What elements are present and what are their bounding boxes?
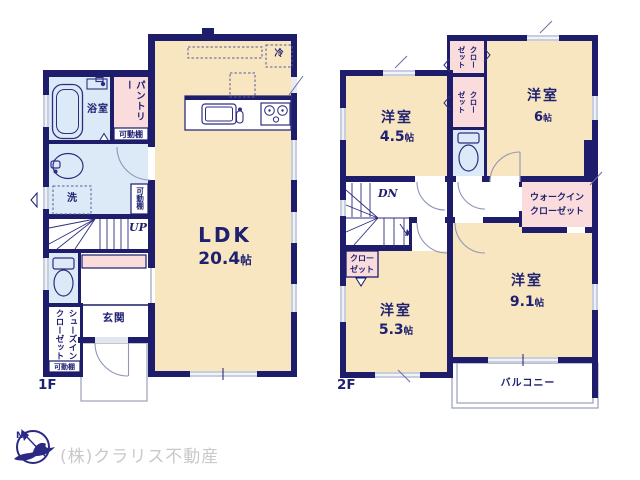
room-ldk [155, 41, 291, 371]
room-45 [346, 76, 447, 177]
shoe-closet-label: シューズイン クローゼット [52, 309, 78, 367]
entrance-porch [81, 343, 147, 401]
floorplan-canvas: N 浴室 パントリー 可動棚 洗 可動棚 UP LDK 20.4帖 冷 玄関 シ… [0, 0, 640, 480]
walkin-closet-label: ウォークイン クローゼット [520, 192, 594, 219]
room6-size-unit: 帖 [543, 114, 552, 124]
laundry-label: 洗 [56, 193, 88, 205]
pantry-label: パントリー [122, 80, 144, 128]
balcony-label: バルコニー [488, 378, 568, 390]
room53-size-unit: 帖 [404, 326, 414, 337]
room91-size-label: 9.1帖 [492, 294, 562, 310]
fridge-label: 冷 [266, 49, 292, 59]
room53-size-value: 5.3 [379, 322, 404, 338]
stairs-dn-label: DN [378, 188, 398, 201]
closet-top-label: クロー ゼット [455, 43, 479, 72]
room45-size-unit: 帖 [405, 133, 415, 144]
closet-small-label: クロー ゼット [346, 254, 378, 275]
room6-size-label: 6帖 [508, 111, 578, 126]
room45-size-label: 4.5帖 [362, 129, 432, 145]
shoe-shelf-label: 可動棚 [49, 363, 80, 371]
room91-size-value: 9.1 [510, 294, 535, 310]
hall-shelf [82, 255, 146, 268]
room6-name-label: 洋室 [508, 88, 578, 104]
stairs-up-label: UP [129, 222, 147, 235]
room-6 [487, 41, 592, 177]
room6-size-value: 6 [534, 110, 543, 125]
room45-name-label: 洋室 [362, 110, 432, 126]
floor1-label: 1F [38, 378, 57, 394]
room91-size-unit: 帖 [535, 298, 545, 309]
floorplan-drawing: N [0, 0, 640, 480]
entrance-label: 玄関 [94, 312, 134, 324]
room91-name-label: 洋室 [492, 273, 562, 289]
room53-name-label: 洋室 [361, 303, 431, 319]
room53-size-label: 5.3帖 [361, 322, 431, 338]
pantry-shelf-label: 可動棚 [114, 130, 148, 139]
ldk-size-label: 20.4帖 [180, 250, 270, 270]
ldk-name-label: LDK [185, 224, 265, 247]
company-logo: N [14, 429, 55, 463]
washroom-shelf-label: 可動棚 [135, 187, 144, 213]
bathroom-label: 浴室 [82, 104, 114, 116]
kitchen-counter-icon [185, 96, 291, 130]
company-name: (株)クラリス不動産 [60, 448, 219, 468]
room45-size-value: 4.5 [380, 129, 405, 145]
floor2-label: 2F [337, 378, 356, 394]
ldk-size-value: 20.4 [198, 249, 240, 269]
closet-mid-label: クロー ゼット [455, 88, 479, 117]
ldk-size-unit: 帖 [240, 253, 252, 267]
